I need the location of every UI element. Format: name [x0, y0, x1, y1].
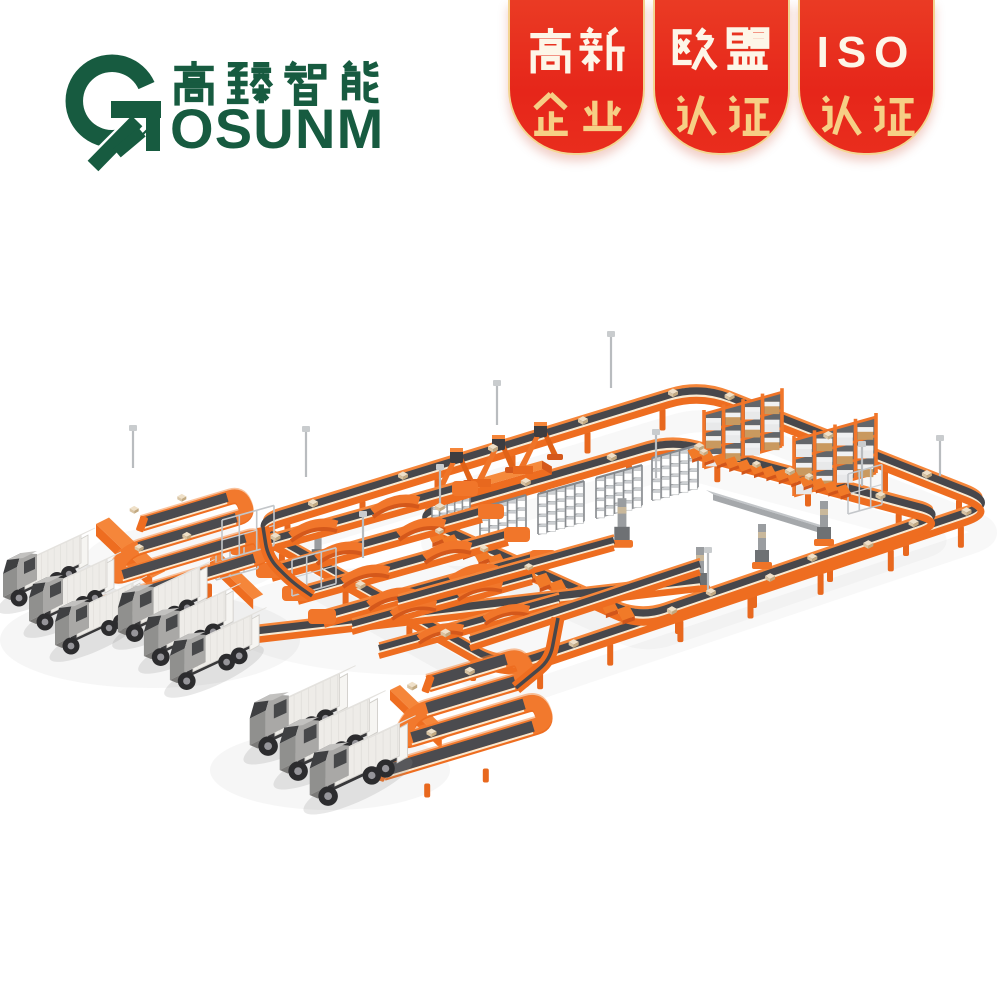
- svg-text:ISO: ISO: [817, 28, 917, 77]
- svg-text:OSUNM: OSUNM: [170, 97, 384, 160]
